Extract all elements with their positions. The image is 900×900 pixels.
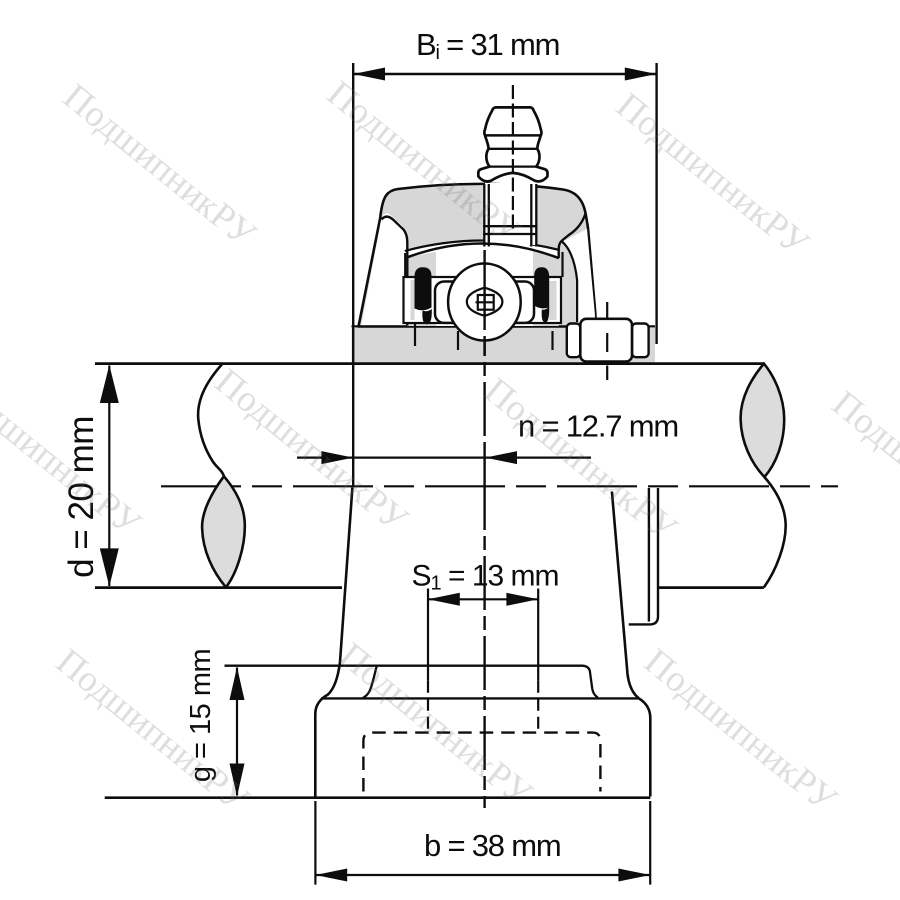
svg-text:b = 38 mm: b = 38 mm bbox=[424, 828, 561, 863]
